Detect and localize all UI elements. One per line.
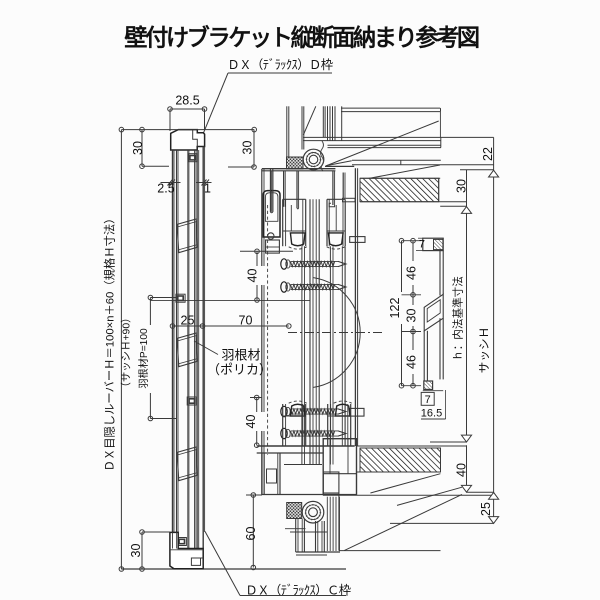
svg-text:ＤＸ目隠しルーバーＨ＝100×n＋60（規格Ｈ寸法）: ＤＸ目隠しルーバーＨ＝100×n＋60（規格Ｈ寸法）	[103, 213, 117, 472]
svg-text:サッシＨ: サッシＨ	[478, 327, 491, 373]
svg-text:（ポリカ）: （ポリカ）	[207, 362, 272, 377]
svg-text:ｈ：内法基準寸法: ｈ：内法基準寸法	[452, 276, 465, 361]
svg-text:壁付けブラケット縦断面納まり参考図: 壁付けブラケット縦断面納まり参考図	[124, 25, 479, 51]
svg-text:羽根材: 羽根材	[221, 348, 260, 363]
svg-text:46: 46	[405, 266, 419, 280]
svg-text:30: 30	[455, 179, 469, 193]
svg-text:1: 1	[204, 182, 211, 196]
svg-text:2.5: 2.5	[157, 182, 174, 196]
svg-text:40: 40	[246, 269, 260, 283]
svg-text:7: 7	[419, 239, 425, 251]
svg-text:25: 25	[479, 502, 493, 516]
svg-text:30: 30	[405, 309, 419, 323]
svg-text:（サッシＨ+90）: （サッシＨ+90）	[121, 313, 133, 393]
svg-text:122: 122	[388, 298, 402, 319]
svg-text:28.5: 28.5	[175, 94, 199, 108]
svg-text:22: 22	[481, 147, 495, 161]
svg-text:25: 25	[181, 314, 195, 328]
svg-text:70: 70	[239, 314, 253, 328]
svg-text:ＤＸ（ﾃﾞﾗｯｸｽ）Ｄ枠: ＤＸ（ﾃﾞﾗｯｸｽ）Ｄ枠	[227, 58, 332, 72]
svg-text:羽根材P=100: 羽根材P=100	[137, 328, 150, 389]
svg-text:40: 40	[455, 463, 469, 477]
svg-text:16.5: 16.5	[421, 408, 442, 420]
svg-text:30: 30	[241, 141, 255, 155]
svg-text:40: 40	[244, 415, 258, 429]
svg-text:46: 46	[405, 355, 419, 369]
svg-text:60: 60	[244, 527, 258, 541]
svg-text:30: 30	[129, 544, 143, 558]
svg-text:30: 30	[131, 141, 145, 155]
svg-text:7: 7	[425, 394, 431, 406]
